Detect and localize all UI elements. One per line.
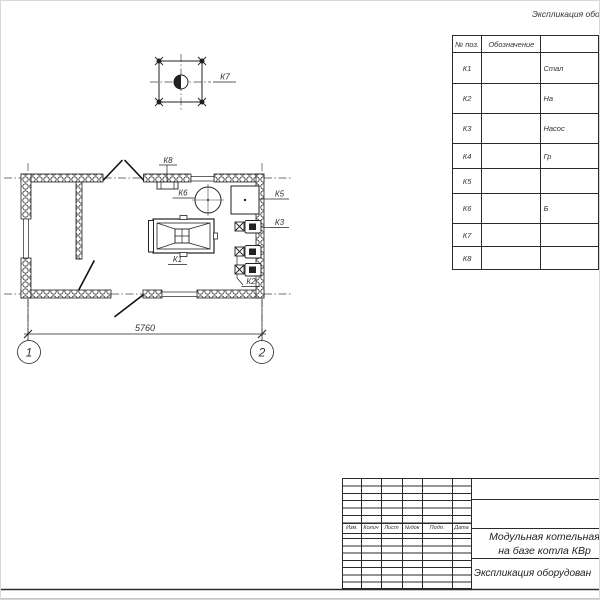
hdr-izm: Изм. bbox=[343, 524, 361, 533]
window-bottom bbox=[162, 292, 197, 297]
title-block-empty-row bbox=[472, 479, 600, 500]
title-block-right: Модульная котельная на базе котла КВр Эк… bbox=[472, 478, 600, 589]
tank-k6: К6 bbox=[173, 184, 225, 216]
designation-cell bbox=[482, 194, 541, 224]
hdr-ndok: №док bbox=[402, 524, 422, 533]
dimension-5760: 5760 bbox=[24, 299, 266, 341]
spec-row: К3 Насос bbox=[453, 114, 599, 144]
pos-cell: К7 bbox=[453, 224, 482, 247]
vent-k8: К8 bbox=[157, 156, 178, 189]
name-cell bbox=[541, 169, 599, 194]
dimension-text: 5760 bbox=[135, 323, 155, 333]
boiler-k1: К1 bbox=[149, 216, 218, 265]
col-header-designation: Обозначение bbox=[482, 36, 541, 53]
window-left bbox=[24, 219, 29, 258]
hdr-podp: Подп. bbox=[422, 524, 452, 533]
spec-row: К4 Гр bbox=[453, 144, 599, 169]
pos-cell: К6 bbox=[453, 194, 482, 224]
wall-top-1 bbox=[21, 174, 103, 182]
spec-row: К5 bbox=[453, 169, 599, 194]
label-k1: К1 bbox=[173, 255, 182, 264]
wall-bottom-2 bbox=[143, 290, 162, 298]
walls bbox=[21, 174, 264, 298]
chimney-k7: К7 bbox=[155, 57, 236, 106]
designation-cell bbox=[482, 224, 541, 247]
label-k3: К3 bbox=[275, 218, 285, 227]
designation-cell bbox=[482, 144, 541, 169]
spec-table: № поз. Обозначение К1 Стал К2 На К3 Насо… bbox=[452, 35, 599, 270]
wall-partition bbox=[76, 182, 82, 259]
pos-cell: К8 bbox=[453, 247, 482, 270]
pos-cell: К3 bbox=[453, 114, 482, 144]
name-cell: Б bbox=[541, 194, 599, 224]
door-leaf-interior bbox=[79, 261, 94, 290]
wall-bottom-1 bbox=[21, 290, 111, 298]
door-leaf-top-right bbox=[125, 161, 144, 181]
col-header-name bbox=[541, 36, 599, 53]
label-k7: К7 bbox=[220, 72, 230, 82]
sheet-title: Экспликация оборудован bbox=[472, 559, 600, 589]
label-k6: К6 bbox=[178, 189, 188, 198]
designation-cell bbox=[482, 84, 541, 114]
name-cell bbox=[541, 224, 599, 247]
door-leaf-bottom bbox=[115, 295, 143, 317]
axis-marker-2: 2 bbox=[251, 341, 274, 364]
spec-header-row: № поз. Обозначение bbox=[453, 36, 599, 53]
drawing-sheet: К7 bbox=[0, 0, 600, 600]
designation-cell bbox=[482, 169, 541, 194]
name-cell: Насос bbox=[541, 114, 599, 144]
pos-cell: К1 bbox=[453, 53, 482, 84]
svg-text:2: 2 bbox=[258, 346, 266, 360]
name-cell: Гр bbox=[541, 144, 599, 169]
designation-cell bbox=[482, 53, 541, 84]
spec-row: К7 bbox=[453, 224, 599, 247]
window-top bbox=[191, 177, 214, 182]
title-block: Изм. Колич Лист №док Подп. Дата Модульна… bbox=[342, 478, 600, 589]
doc-title-line2: на базе котла КВр bbox=[472, 544, 600, 558]
hdr-list: Лист bbox=[381, 524, 402, 533]
spec-row: К2 На bbox=[453, 84, 599, 114]
hdr-kol: Колич bbox=[361, 524, 381, 533]
label-k5: К5 bbox=[275, 190, 285, 199]
label-k8: К8 bbox=[163, 156, 173, 165]
wall-bottom-3 bbox=[197, 290, 264, 298]
title-block-grid: Изм. Колич Лист №док Подп. Дата bbox=[342, 478, 472, 589]
svg-text:1: 1 bbox=[26, 346, 33, 360]
title-block-header: Изм. Колич Лист №док Подп. Дата bbox=[343, 523, 471, 534]
title-block-empty-row bbox=[472, 500, 600, 529]
pos-cell: К5 bbox=[453, 169, 482, 194]
spec-row: К1 Стал bbox=[453, 53, 599, 84]
spec-row: К8 bbox=[453, 247, 599, 270]
pos-cell: К2 bbox=[453, 84, 482, 114]
col-header-pos: № поз. bbox=[453, 36, 482, 53]
pos-cell: К4 bbox=[453, 144, 482, 169]
wall-left-2 bbox=[21, 258, 31, 298]
axis-marker-1: 1 bbox=[18, 341, 41, 364]
name-cell bbox=[541, 247, 599, 270]
spec-table-title: Экспликация обору bbox=[532, 9, 600, 19]
name-cell: Стал bbox=[541, 53, 599, 84]
name-cell: На bbox=[541, 84, 599, 114]
designation-cell bbox=[482, 247, 541, 270]
designation-cell bbox=[482, 114, 541, 144]
label-k2: К2 bbox=[246, 277, 256, 286]
door-leaf-top-left bbox=[104, 161, 123, 181]
spec-row: К6 Б bbox=[453, 194, 599, 224]
hdr-data: Дата bbox=[452, 524, 471, 533]
half-filled-marker-icon bbox=[174, 75, 181, 89]
doc-title-line1: Модульная котельная bbox=[472, 530, 600, 544]
doc-title: Модульная котельная на базе котла КВр bbox=[472, 529, 600, 559]
wall-left-1 bbox=[21, 174, 31, 219]
